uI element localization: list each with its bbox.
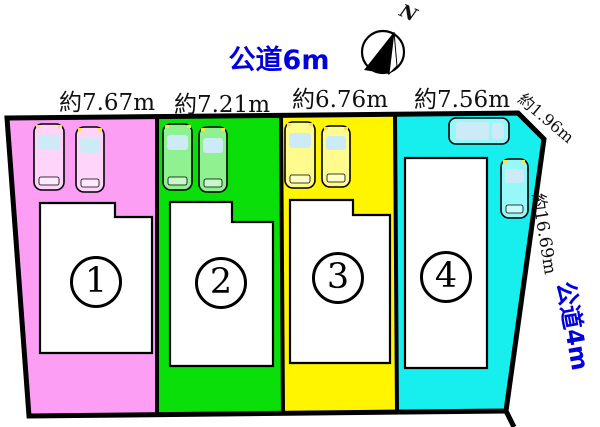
lot-boundary-3-4	[395, 114, 397, 412]
car-icon	[199, 127, 227, 192]
lot-number-1: 1	[70, 256, 122, 308]
lot-plan-diagram: 1 2 3 4 公道6m N 約7.67m 約7.21m 約6.76m 約7.5…	[0, 0, 600, 427]
lot-3-width-label: 約6.76m	[280, 80, 400, 114]
lot-number-2: 2	[195, 257, 247, 309]
compass-icon	[362, 31, 404, 74]
lot-1-width-label: 約7.67m	[47, 83, 167, 117]
road-edge-line	[506, 411, 514, 427]
lot-2-width-label: 約7.21m	[162, 85, 282, 119]
lot-number-4-text: 4	[435, 256, 457, 296]
car-icon	[501, 159, 528, 218]
lot-number-4: 4	[420, 251, 472, 303]
car-icon	[322, 126, 350, 187]
lot-number-2-text: 2	[210, 262, 232, 302]
car-icon	[163, 124, 192, 190]
car-icon	[34, 124, 64, 190]
lot-number-3-text: 3	[327, 257, 349, 297]
road-top-label: 公道6m	[214, 38, 344, 77]
lot-boundary-2-3	[281, 115, 283, 413]
lot-4-width-label: 約7.56m	[402, 80, 522, 114]
lot-number-3: 3	[312, 252, 364, 304]
car-icon	[449, 118, 509, 144]
lot-number-1-text: 1	[85, 261, 107, 301]
car-icon	[285, 122, 315, 188]
car-icon	[76, 127, 104, 192]
